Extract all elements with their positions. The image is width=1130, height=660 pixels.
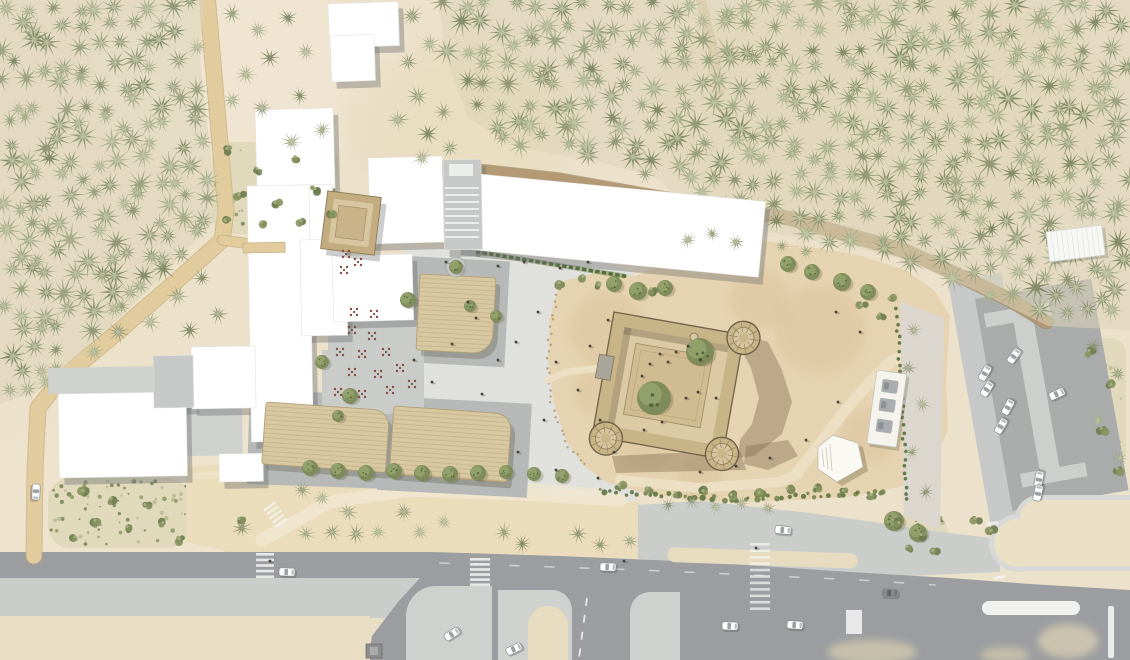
building-roof-white <box>219 453 263 482</box>
cafe-chair-dot <box>388 354 390 356</box>
bed-speckle <box>87 531 89 533</box>
edge-stone <box>550 333 552 335</box>
bed-speckle <box>119 521 121 523</box>
tree-speckle <box>845 280 847 282</box>
pedestrian-dot <box>597 477 600 480</box>
traffic-island <box>630 592 680 660</box>
shrub-highlight <box>931 549 934 552</box>
tree-speckle <box>664 291 666 293</box>
hedge-dot <box>904 492 908 496</box>
cafe-chair-dot <box>348 374 350 376</box>
shrub-highlight <box>293 155 296 158</box>
bed-speckle <box>67 492 72 497</box>
pedestrian-dot <box>481 393 484 396</box>
shrub-highlight <box>989 529 992 532</box>
tree-crown <box>415 466 426 477</box>
edge-stone <box>549 395 551 397</box>
car <box>30 484 41 502</box>
tree-speckle <box>839 285 841 287</box>
tree-speckle <box>472 306 473 307</box>
pedestrian-dot <box>715 397 718 400</box>
edge-stone <box>554 416 556 418</box>
hedge-dot <box>812 495 816 499</box>
crosswalk-stripe <box>750 562 770 565</box>
tree-speckle <box>340 467 342 469</box>
cafe-chair-dot <box>346 266 348 268</box>
cafe-chair-dot <box>342 250 344 252</box>
shrub-highlight <box>757 491 760 494</box>
shrub-highlight <box>125 525 128 528</box>
edge-stone <box>555 306 557 308</box>
cafe-chair-dot <box>342 354 344 356</box>
cafe-chair-dot <box>350 308 352 310</box>
hedge-dot <box>873 489 878 494</box>
edge-stone <box>562 433 564 435</box>
car-windshield <box>605 564 609 570</box>
site-plan-svg <box>0 0 1130 660</box>
bed-speckle <box>117 500 119 502</box>
tree-speckle <box>784 260 786 262</box>
pedestrian-dot <box>537 311 540 314</box>
cafe-chair-dot <box>354 374 356 376</box>
tree-speckle <box>889 523 891 525</box>
tree-crown <box>331 464 342 475</box>
bed-speckle <box>1109 366 1113 370</box>
cafe-chair-dot <box>382 354 384 356</box>
hedge-dot <box>895 315 899 319</box>
cafe-chair-dot <box>348 256 350 258</box>
tree-speckle <box>655 403 658 406</box>
crosswalk-stripe <box>750 549 770 552</box>
courtyard-floor <box>335 205 367 240</box>
hedge-dot <box>897 350 901 354</box>
tree-speckle <box>789 263 791 265</box>
pedestrian-dot <box>641 375 644 378</box>
crosswalk-stripe <box>470 568 490 571</box>
tree-speckle <box>651 393 654 396</box>
pedestrian-dot <box>269 560 272 563</box>
bed-speckle <box>137 540 140 543</box>
bed-speckle <box>64 489 67 492</box>
cafe-chair-dot <box>368 338 370 340</box>
crosswalk-stripe <box>750 575 770 578</box>
edge-stone <box>561 430 563 432</box>
footbridge <box>243 242 285 253</box>
hedge-dot <box>766 494 770 498</box>
shrub-highlight <box>557 281 560 284</box>
hedge-block <box>582 267 587 271</box>
edge-stone <box>555 294 557 296</box>
cafe-chair-dot <box>340 388 342 390</box>
bed-speckle <box>97 528 100 531</box>
traffic-island <box>406 586 492 660</box>
car-windshield <box>887 590 891 596</box>
tree-speckle <box>340 416 341 417</box>
cafe-chair-dot <box>414 380 416 382</box>
bed-speckle <box>106 486 109 489</box>
hedge-dot <box>699 495 705 501</box>
tree-speckle <box>809 273 811 275</box>
hedge-dot <box>774 496 780 502</box>
cafe-chair-dot <box>382 348 384 350</box>
bed-speckle <box>54 493 58 497</box>
pedestrian-dot <box>661 421 664 424</box>
hedge-dot <box>904 458 908 462</box>
hedge-block <box>588 269 593 273</box>
crosswalk-stripe <box>470 578 490 581</box>
tree-speckle <box>334 475 336 477</box>
shrub-highlight <box>255 167 258 170</box>
edge-stone <box>552 318 554 320</box>
pedestrian-dot <box>445 261 448 264</box>
greenhouse-roof <box>1046 225 1105 262</box>
hedge-dot <box>653 491 658 496</box>
bed-speckle <box>97 536 99 538</box>
crosswalk-stripe <box>750 556 770 559</box>
tree-speckle <box>454 269 455 270</box>
tree-speckle <box>406 297 408 299</box>
tree-speckle <box>473 474 475 476</box>
tree-speckle <box>319 359 320 360</box>
tree-speckle <box>867 292 869 294</box>
hedge-dot <box>712 494 717 499</box>
tree-speckle <box>536 473 537 474</box>
cafe-chair-dot <box>364 350 366 352</box>
hedge-block <box>608 272 613 276</box>
tree-speckle <box>459 263 460 264</box>
canopy-roof <box>416 274 501 360</box>
cafe-chair-dot <box>374 332 376 334</box>
tree-speckle <box>410 299 412 301</box>
tree-crown <box>500 466 510 476</box>
cafe-chair-dot <box>350 314 352 316</box>
building-roof-white <box>191 346 256 409</box>
shrub-highlight <box>273 201 276 204</box>
cafe-chair-dot <box>360 258 362 260</box>
tree-speckle <box>365 474 367 476</box>
bed-speckle <box>84 507 87 510</box>
hedge-dot <box>614 491 618 495</box>
pedestrian-dot <box>675 351 678 354</box>
tree-crown <box>387 464 398 475</box>
bed-speckle <box>160 486 163 489</box>
pedestrian-dot <box>649 363 652 366</box>
bed-speckle <box>940 519 943 522</box>
shrub-highlight <box>905 545 908 548</box>
tree-speckle <box>347 392 349 394</box>
pedestrian-dot <box>623 560 626 563</box>
crosswalk-stripe <box>256 575 274 578</box>
cafe-chair-dot <box>396 370 398 372</box>
pedestrian-dot <box>497 265 500 268</box>
cafe-chair-dot <box>380 370 382 372</box>
hedge-dot <box>903 443 907 447</box>
shrub-highlight <box>259 221 262 224</box>
shrub-highlight <box>897 521 900 524</box>
shrub <box>922 531 927 536</box>
cafe-table-dot <box>337 391 339 393</box>
edge-stone <box>546 367 548 369</box>
shrub-highlight <box>73 535 76 538</box>
tree-crown <box>359 466 370 477</box>
bed-speckle <box>127 493 129 495</box>
cafe-chair-dot <box>364 356 366 358</box>
cafe-chair-dot <box>374 338 376 340</box>
cafe-chair-dot <box>368 332 370 334</box>
pedestrian-dot <box>431 381 434 384</box>
bed-speckle <box>184 513 186 515</box>
cafe-table-dot <box>353 311 355 313</box>
tree-speckle <box>814 273 816 275</box>
cafe-chair-dot <box>340 394 342 396</box>
hedge-dot <box>601 489 607 495</box>
tree-speckle <box>533 475 534 476</box>
cafe-chair-dot <box>374 370 376 372</box>
car-windshield <box>727 623 731 629</box>
car-rear-window <box>895 590 897 595</box>
cafe-chair-dot <box>334 388 336 390</box>
hedge-dot <box>599 488 602 491</box>
cafe-chair-dot <box>376 316 378 318</box>
cafe-chair-dot <box>370 316 372 318</box>
tree-speckle <box>558 478 559 479</box>
cafe-chair-dot <box>346 272 348 274</box>
tree-speckle <box>457 268 458 269</box>
edge-stone <box>553 410 555 412</box>
shrub-highlight <box>237 517 240 520</box>
shrub-highlight <box>81 489 84 492</box>
tree-crown <box>781 257 792 268</box>
tree-speckle <box>614 286 616 288</box>
utility-box-lid <box>370 647 378 655</box>
bed-speckle <box>155 498 157 500</box>
bed-speckle <box>118 512 121 515</box>
shrub-highlight <box>859 303 862 306</box>
tree-speckle <box>477 473 479 475</box>
tree-crown <box>491 311 499 319</box>
shrub-highlight <box>919 533 922 536</box>
edge-stone <box>554 300 556 302</box>
cafe-chair-dot <box>408 386 410 388</box>
hedge-dot <box>826 493 831 498</box>
pedestrian-dot <box>589 345 592 348</box>
cafe-table-dot <box>343 269 345 271</box>
hedge-block <box>595 270 600 274</box>
stair-landing <box>449 164 473 176</box>
hedge-dot <box>903 464 907 468</box>
pedestrian-dot <box>577 389 580 392</box>
shrub-highlight <box>597 283 600 286</box>
corner-island-sand <box>1020 500 1130 566</box>
pedestrian-dot <box>755 547 758 550</box>
cafe-chair-dot <box>336 348 338 350</box>
shrub-highlight <box>701 489 704 492</box>
bed-speckle <box>98 495 102 499</box>
bed-speckle <box>55 529 58 532</box>
bed-speckle <box>160 511 164 515</box>
hedge-dot <box>901 437 905 441</box>
cafe-chair-dot <box>402 370 404 372</box>
tree-crown <box>687 339 706 358</box>
shrub-highlight <box>225 147 228 150</box>
bottom-left-sand <box>0 616 370 660</box>
bed-speckle <box>60 500 64 504</box>
car <box>882 589 900 600</box>
cafe-chair-dot <box>360 264 362 266</box>
tree-speckle <box>393 468 395 470</box>
hedge-block <box>622 274 627 278</box>
shrub <box>816 486 823 493</box>
cafe-chair-dot <box>396 364 398 366</box>
pedestrian-dot <box>685 397 688 400</box>
hedge-dot <box>895 329 899 333</box>
building-roof-white <box>330 34 376 82</box>
bed-speckle <box>79 535 83 539</box>
hedge-dot <box>608 489 611 492</box>
kiosk-vehicle-glass <box>883 382 889 390</box>
pedestrian-dot <box>769 457 772 460</box>
edge-stone <box>572 451 574 453</box>
shrub-highlight <box>237 193 240 196</box>
bed-speckle <box>53 518 57 522</box>
edge-stone <box>547 339 549 341</box>
bed-speckle <box>239 210 241 212</box>
tree-speckle <box>424 471 426 473</box>
main-road-west <box>0 552 432 578</box>
tree-speckle <box>564 475 565 476</box>
pedestrian-dot <box>667 361 670 364</box>
tree-speckle <box>615 280 617 282</box>
kiosk-vehicle-glass <box>881 401 887 409</box>
bed-speckle <box>79 518 81 520</box>
crosswalk-stripe <box>750 543 770 546</box>
edge-stone <box>549 344 551 346</box>
hedge-dot <box>898 335 902 339</box>
bed-speckle <box>170 528 175 533</box>
shrub-highlight <box>785 487 788 490</box>
tree-speckle <box>362 476 364 478</box>
cafe-table-dot <box>385 351 387 353</box>
cafe-chair-dot <box>364 396 366 398</box>
tree-speckle <box>666 287 668 289</box>
hedge-dot <box>630 490 634 494</box>
tree-speckle <box>808 267 810 269</box>
pedestrian-dot <box>607 319 610 322</box>
bed-speckle <box>234 213 238 217</box>
cafe-chair-dot <box>358 356 360 358</box>
hedge-dot <box>898 364 902 368</box>
shrub-highlight <box>143 503 146 506</box>
tree-speckle <box>701 351 704 354</box>
pedestrian-dot <box>475 317 478 320</box>
shrub-highlight <box>329 209 332 212</box>
blur-blob <box>1038 624 1098 658</box>
tree-speckle <box>338 413 339 414</box>
tree-speckle <box>611 287 613 289</box>
bed-speckle <box>84 542 88 546</box>
cafe-table-dot <box>357 261 359 263</box>
shrub-highlight <box>109 497 112 500</box>
pedestrian-dot <box>515 341 518 344</box>
tree-speckle <box>865 291 867 293</box>
tree-speckle <box>334 471 336 473</box>
bed-speckle <box>1114 367 1116 369</box>
cafe-chair-dot <box>358 390 360 392</box>
shrub-highlight <box>973 517 976 520</box>
tree-crown <box>658 281 669 292</box>
tree-speckle <box>351 396 353 398</box>
pedestrian-dot <box>697 391 700 394</box>
shrub <box>276 199 284 207</box>
tree-crown <box>528 468 538 478</box>
hedge-dot <box>801 494 806 499</box>
shrub-highlight <box>869 493 872 496</box>
tree-speckle <box>453 476 455 478</box>
shrub-highlight <box>813 485 816 488</box>
pedestrian-dot <box>497 359 500 362</box>
shrub <box>1085 351 1091 357</box>
cafe-chair-dot <box>376 310 378 312</box>
car-rear-window <box>613 564 615 569</box>
tree-speckle <box>324 364 325 365</box>
cafe-chair-dot <box>342 256 344 258</box>
bed-speckle <box>152 500 156 504</box>
pedestrian-dot <box>555 469 558 472</box>
bed-speckle <box>123 487 126 490</box>
shrub-highlight <box>617 483 620 486</box>
car <box>787 620 806 631</box>
cafe-chair-dot <box>354 258 356 260</box>
shrub-highlight <box>581 275 584 278</box>
building-roof-gray <box>153 355 194 408</box>
pedestrian-dot <box>467 301 470 304</box>
crosswalk-stripe <box>470 573 490 576</box>
bed-speckle <box>99 506 101 508</box>
shrub <box>146 504 152 510</box>
hedge-dot <box>722 498 728 504</box>
edge-stone <box>548 372 550 374</box>
pedestrian-dot <box>805 439 808 442</box>
cafe-chair-dot <box>364 390 366 392</box>
hedge-dot <box>635 493 639 497</box>
crosswalk-stripe <box>750 588 770 591</box>
hedge-dot <box>793 493 798 498</box>
tree-crown <box>834 274 846 286</box>
car <box>279 568 297 579</box>
hedge-dot <box>779 496 784 501</box>
courtyard <box>320 191 387 262</box>
crosswalk-stripe <box>470 583 490 586</box>
tree-crown <box>443 467 454 478</box>
bed-speckle <box>162 496 167 501</box>
hedge-dot <box>894 307 898 311</box>
pedestrian-dot <box>543 419 546 422</box>
hedge-dot <box>905 486 909 490</box>
tree-crown <box>316 356 326 366</box>
bed-speckle <box>180 513 182 515</box>
cafe-table-dot <box>389 389 391 391</box>
tree-speckle <box>451 476 453 478</box>
hedge-dot <box>788 495 792 499</box>
crosswalk-stripe <box>256 564 274 567</box>
hedge-dot <box>746 496 749 499</box>
cafe-chair-dot <box>340 266 342 268</box>
hedge-dot <box>625 493 628 496</box>
bed-speckle <box>50 528 53 531</box>
kiosk-vehicle <box>875 419 893 434</box>
hedge-dot <box>898 341 902 345</box>
tree-speckle <box>445 474 447 476</box>
